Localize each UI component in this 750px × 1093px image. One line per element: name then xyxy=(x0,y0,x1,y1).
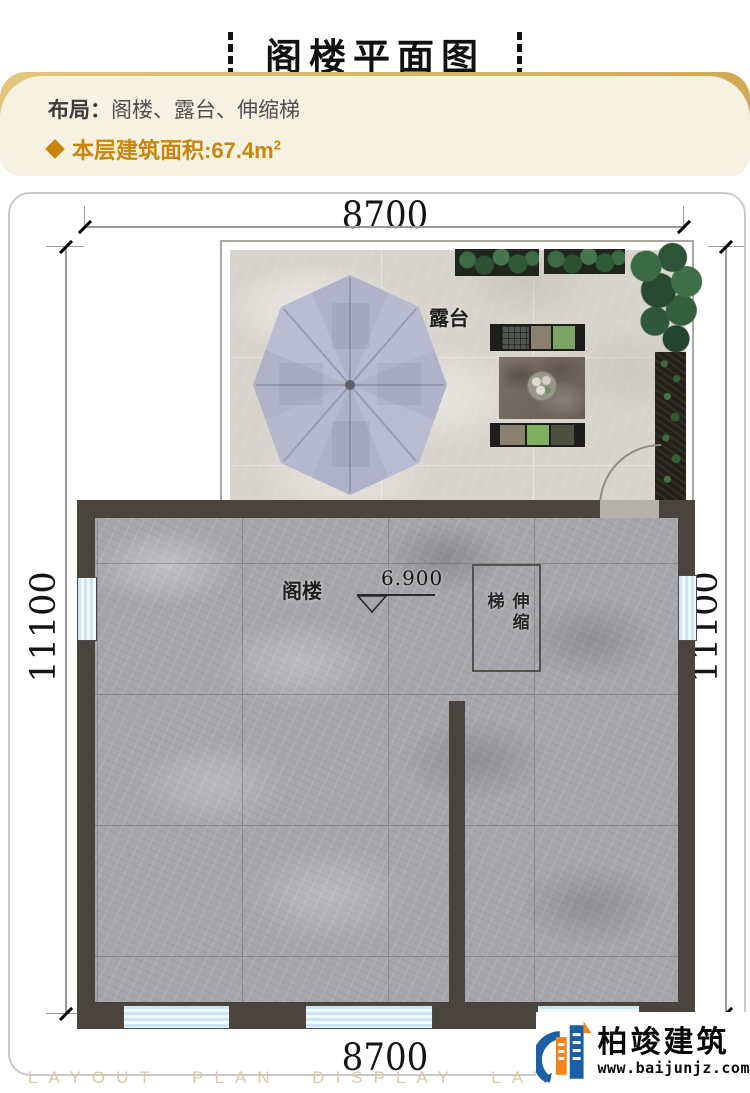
bench-cushion xyxy=(531,326,551,349)
ladder-label: 伸缩梯 xyxy=(482,592,532,644)
extension-line xyxy=(84,206,85,226)
table-centerpiece xyxy=(527,371,557,401)
bench-cushion xyxy=(551,425,574,445)
brand-name: 柏竣建筑 xyxy=(598,1027,750,1059)
planter-box xyxy=(544,249,625,274)
patio-umbrella xyxy=(253,275,447,495)
attic-floor xyxy=(95,518,678,1002)
door-opening xyxy=(600,500,659,518)
window-bottom-2 xyxy=(305,1005,433,1029)
brand-logo-icon xyxy=(536,1015,594,1089)
telescopic-ladder-box: 伸缩梯 xyxy=(472,564,541,672)
level-value: 6.900 xyxy=(381,566,443,590)
extension-line xyxy=(683,206,684,226)
dimension-top: 8700 xyxy=(342,194,429,237)
brand-website: www.baijunjz.com xyxy=(598,1059,750,1077)
tree xyxy=(618,242,706,352)
bench-cushion xyxy=(553,326,575,349)
layout-line: 布局：阁楼、露台、伸缩梯 xyxy=(48,94,300,124)
floor-plan-canvas: 8700 11100 11100 8700 xyxy=(8,192,746,1076)
title-dash-left-icon xyxy=(228,32,233,76)
bench-cushion xyxy=(502,326,529,349)
diamond-bullet-icon xyxy=(45,139,65,159)
window-left xyxy=(77,577,97,641)
window-bottom-1 xyxy=(123,1005,230,1029)
layout-label: 布局： xyxy=(48,99,111,122)
info-panel: 布局：阁楼、露台、伸缩梯 本层建筑面积:67.4m2 xyxy=(0,72,750,176)
bench-bottom xyxy=(490,423,585,447)
umbrella-chair-shadow xyxy=(332,421,370,467)
planter-box xyxy=(455,249,539,276)
area-value: 本层建筑面积:67.4m2 xyxy=(72,133,281,165)
umbrella-chair-shadow xyxy=(332,303,370,349)
bench-top xyxy=(490,324,585,351)
dimension-left: 11100 xyxy=(24,571,64,682)
area-line: 本层建筑面积:67.4m2 xyxy=(48,133,300,165)
title-dash-right-icon xyxy=(517,32,522,76)
bench-cushion xyxy=(527,425,549,445)
layout-value: 阁楼、露台、伸缩梯 xyxy=(111,99,300,122)
brand-logo: 柏竣建筑 www.baijunjz.com xyxy=(536,1012,750,1092)
dimension-line-top xyxy=(85,226,684,228)
terrace-table xyxy=(499,357,585,419)
terrace-label: 露台 xyxy=(429,302,469,331)
wall-partition xyxy=(449,701,465,1002)
window-right xyxy=(678,575,697,641)
bench-cushion xyxy=(500,425,525,445)
level-marker-icon xyxy=(357,595,387,613)
umbrella-pole-icon xyxy=(345,380,355,390)
tile-joints xyxy=(95,518,678,1002)
dimension-line-left xyxy=(65,247,67,1014)
attic-floor-plan-page: 阁楼平面图 布局：阁楼、露台、伸缩梯 本层建筑面积:67.4m2 8700 11… xyxy=(0,0,750,1093)
attic-label: 阁楼 xyxy=(282,575,322,604)
